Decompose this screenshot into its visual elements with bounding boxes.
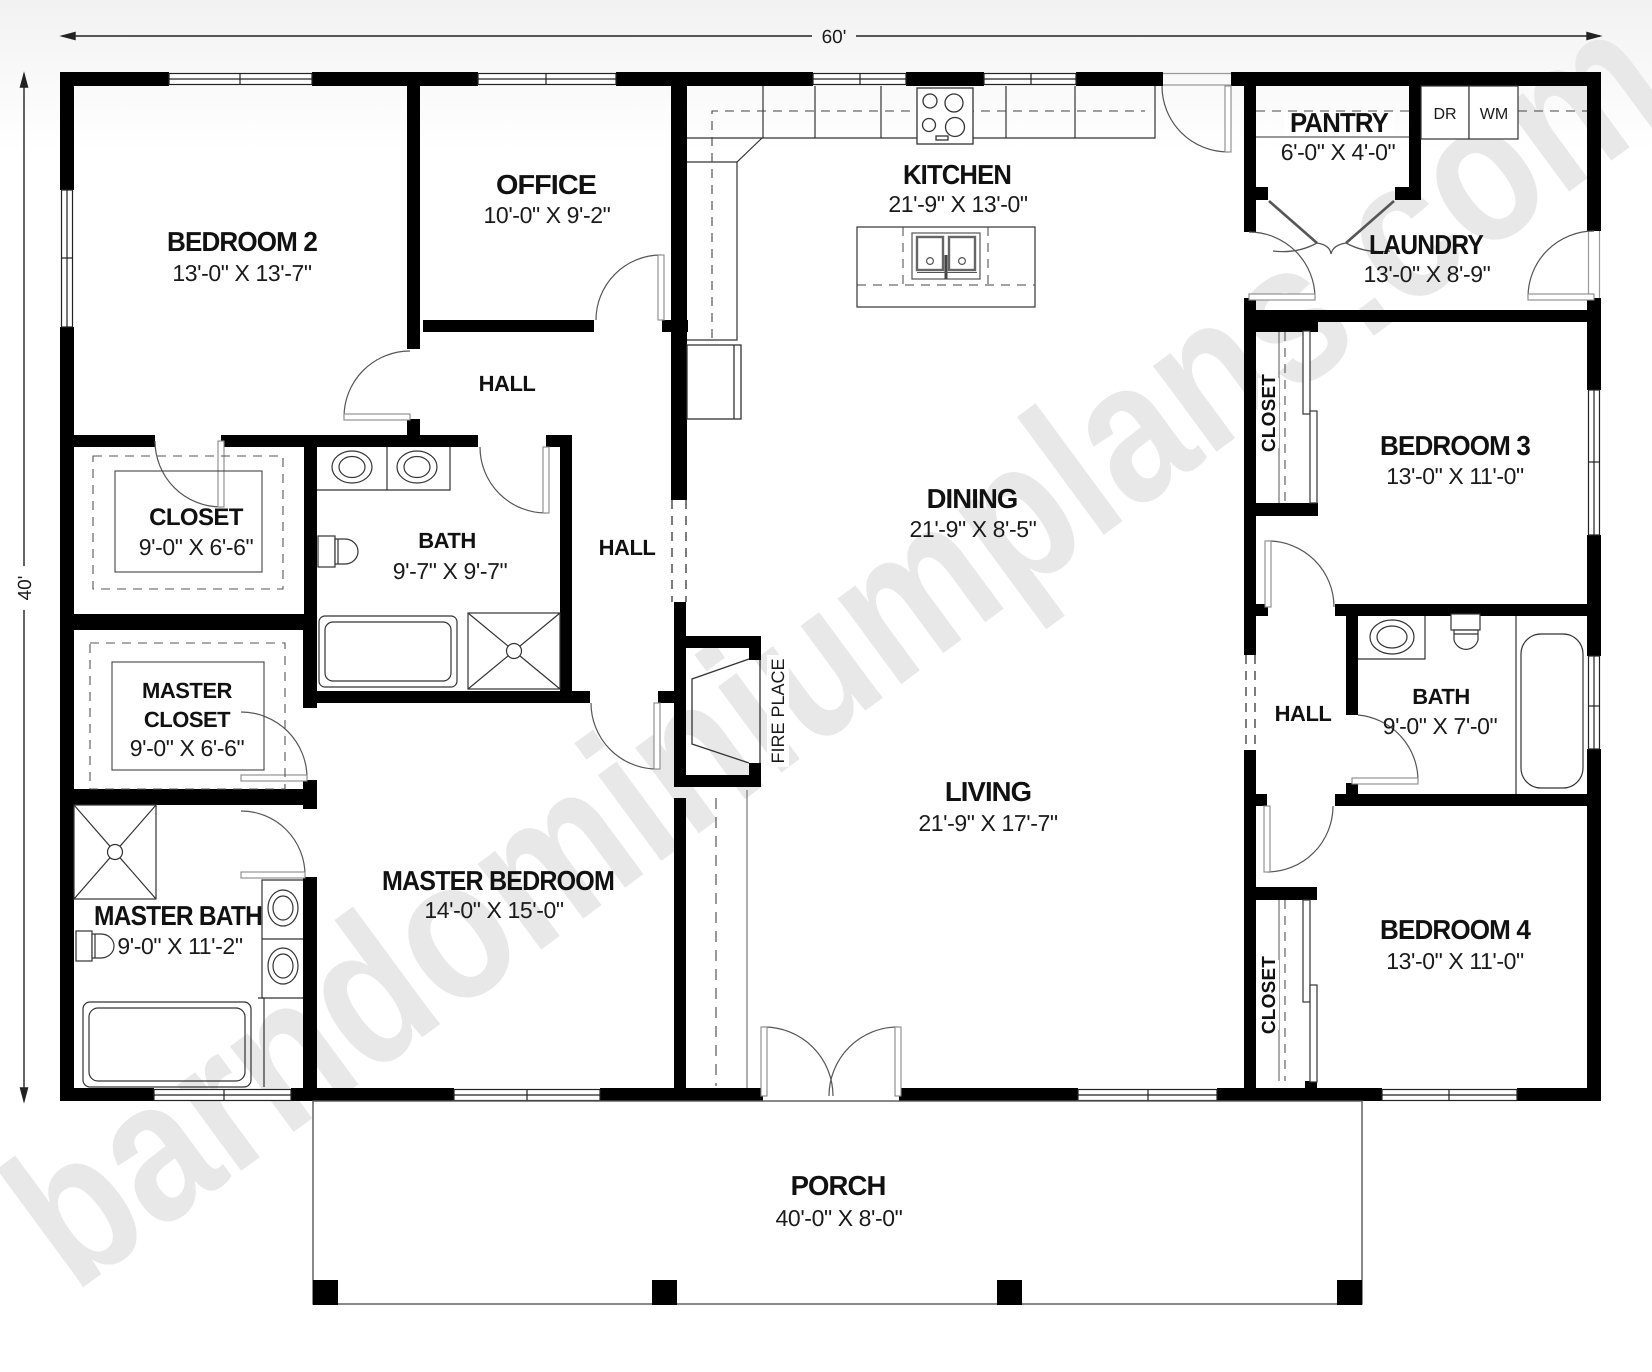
svg-text:21'-9" X 17'-7": 21'-9" X 17'-7" — [918, 810, 1058, 836]
svg-text:DR: DR — [1433, 106, 1456, 123]
svg-text:KITCHEN: KITCHEN — [903, 159, 1011, 190]
svg-text:40'-0" X 8'-0": 40'-0" X 8'-0" — [776, 1205, 903, 1231]
svg-text:BEDROOM 3: BEDROOM 3 — [1380, 430, 1531, 461]
svg-text:13'-0" X 11'-0": 13'-0" X 11'-0" — [1386, 463, 1524, 489]
svg-text:CLOSET: CLOSET — [144, 707, 231, 732]
svg-text:MASTER BEDROOM: MASTER BEDROOM — [382, 865, 614, 896]
svg-text:21'-9" X 13'-0": 21'-9" X 13'-0" — [888, 191, 1028, 217]
svg-text:PORCH: PORCH — [791, 1170, 886, 1201]
svg-text:14'-0" X 15'-0": 14'-0" X 15'-0" — [424, 897, 564, 923]
svg-text:40': 40' — [15, 576, 36, 601]
svg-text:HALL: HALL — [599, 535, 656, 560]
svg-text:13'-0" X 8'-9": 13'-0" X 8'-9" — [1364, 261, 1491, 287]
svg-text:13'-0" X 13'-7": 13'-0" X 13'-7" — [172, 260, 312, 286]
svg-text:WM: WM — [1480, 106, 1508, 123]
svg-text:LIVING: LIVING — [945, 776, 1031, 807]
svg-text:9'-0" X 11'-2": 9'-0" X 11'-2" — [117, 933, 242, 959]
svg-text:DINING: DINING — [927, 483, 1018, 514]
svg-text:21'-9" X 8'-5": 21'-9" X 8'-5" — [910, 516, 1037, 542]
svg-text:9'-0" X 7'-0": 9'-0" X 7'-0" — [1383, 713, 1498, 739]
svg-text:CLOSET: CLOSET — [1259, 956, 1280, 1034]
svg-text:6'-0" X 4'-0": 6'-0" X 4'-0" — [1281, 139, 1396, 165]
svg-text:9'-0" X 6'-6": 9'-0" X 6'-6" — [139, 534, 254, 560]
svg-text:CLOSET: CLOSET — [1259, 374, 1280, 452]
svg-text:9'-0" X 6'-6": 9'-0" X 6'-6" — [130, 735, 245, 761]
svg-text:BEDROOM 4: BEDROOM 4 — [1380, 914, 1532, 945]
svg-text:CLOSET: CLOSET — [149, 504, 244, 531]
svg-text:LAUNDRY: LAUNDRY — [1369, 229, 1483, 260]
svg-text:60': 60' — [822, 27, 847, 48]
svg-text:13'-0" X 11'-0": 13'-0" X 11'-0" — [1386, 948, 1524, 974]
svg-text:MASTER BATH: MASTER BATH — [94, 900, 262, 931]
svg-text:FIRE PLACE: FIRE PLACE — [768, 658, 788, 763]
svg-text:PANTRY: PANTRY — [1290, 107, 1389, 138]
svg-text:HALL: HALL — [1275, 701, 1332, 726]
svg-text:OFFICE: OFFICE — [496, 169, 597, 200]
svg-text:MASTER: MASTER — [142, 678, 233, 703]
svg-text:HALL: HALL — [479, 371, 536, 396]
svg-text:9'-7" X 9'-7": 9'-7" X 9'-7" — [393, 558, 508, 584]
svg-text:BATH: BATH — [418, 528, 475, 553]
svg-text:BATH: BATH — [1412, 684, 1469, 709]
svg-text:BEDROOM 2: BEDROOM 2 — [167, 226, 318, 257]
svg-text:10'-0" X 9'-2": 10'-0" X 9'-2" — [484, 202, 611, 228]
